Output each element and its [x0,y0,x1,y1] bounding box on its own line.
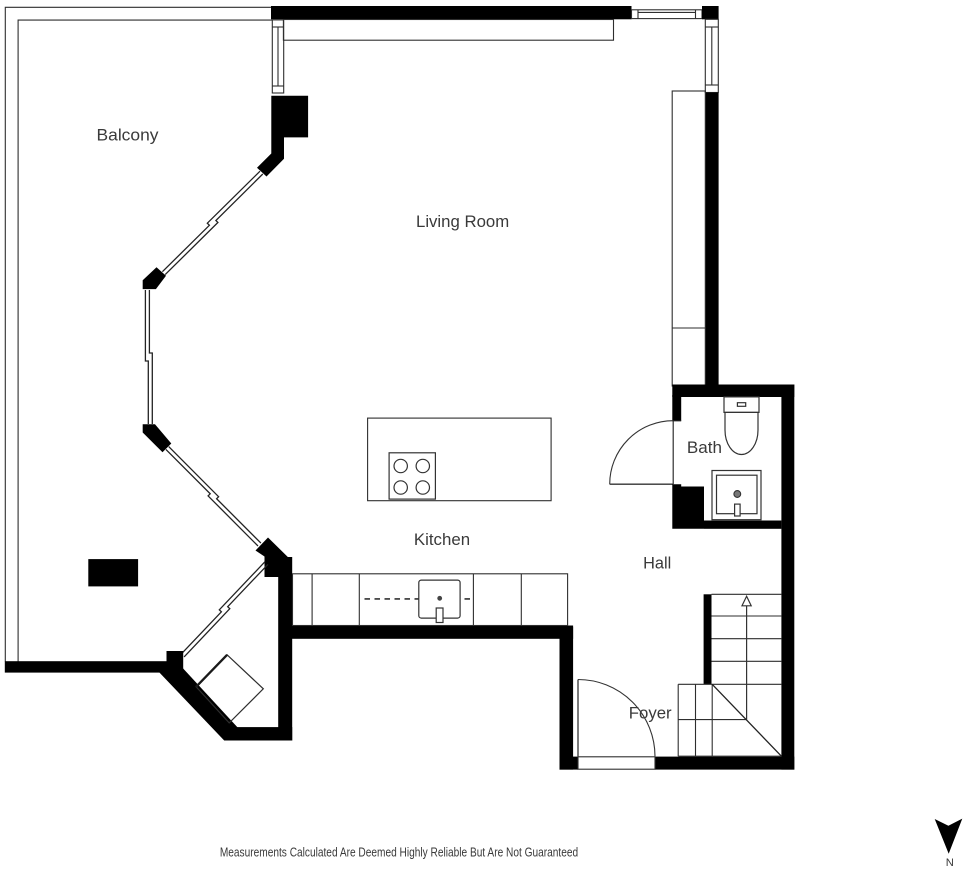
svg-text:Kitchen: Kitchen [414,530,470,549]
svg-text:Hall: Hall [643,553,671,572]
svg-text:Living Room: Living Room [416,212,509,231]
svg-text:Balcony: Balcony [97,125,160,144]
svg-text:N: N [946,857,954,869]
svg-text:Measurements Calculated Are De: Measurements Calculated Are Deemed Highl… [220,846,578,860]
svg-text:Bath: Bath [687,438,722,457]
svg-text:Foyer: Foyer [629,703,672,722]
